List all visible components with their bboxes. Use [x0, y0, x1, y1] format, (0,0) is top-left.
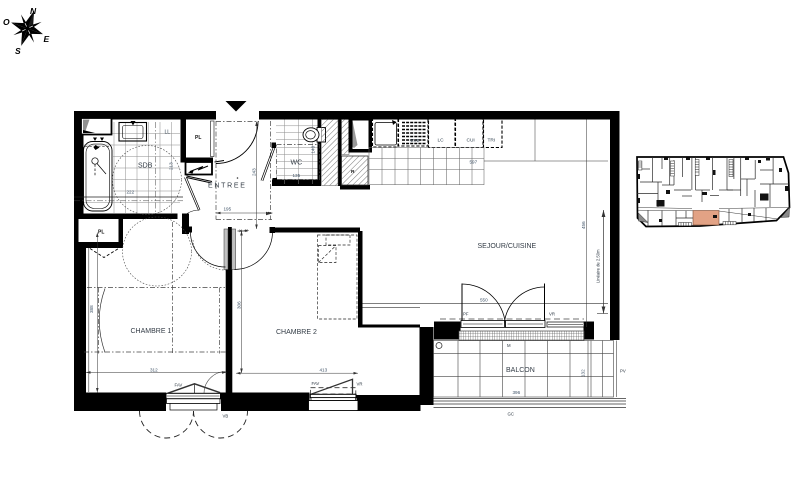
- svg-text:VR: VR: [357, 382, 363, 387]
- svg-text:222: 222: [127, 190, 135, 195]
- svg-text:396: 396: [513, 390, 521, 395]
- svg-text:VR: VR: [549, 312, 555, 317]
- svg-text:E: E: [44, 34, 50, 44]
- svg-text:PL: PL: [195, 135, 201, 141]
- svg-text:BALCON: BALCON: [506, 367, 535, 374]
- svg-text:195: 195: [224, 207, 232, 212]
- svg-text:FAV: FAV: [175, 383, 183, 388]
- svg-text:VB: VB: [223, 414, 229, 419]
- svg-text:M: M: [507, 343, 511, 348]
- svg-text:243: 243: [252, 168, 257, 176]
- svg-text:SEJOUR/CUISINE: SEJOUR/CUISINE: [478, 243, 537, 250]
- svg-text:EVE: EVE: [411, 138, 420, 143]
- svg-text:O: O: [3, 17, 10, 27]
- svg-text:PL: PL: [98, 230, 104, 236]
- svg-text:GC: GC: [508, 412, 514, 417]
- svg-text:WC: WC: [291, 160, 303, 167]
- svg-text:SDB: SDB: [138, 163, 153, 170]
- svg-text:R: R: [351, 169, 355, 175]
- svg-text:FAV: FAV: [312, 381, 320, 386]
- svg-text:Linéaire de 2.50m: Linéaire de 2.50m: [596, 249, 601, 283]
- svg-text:PV: PV: [620, 369, 626, 374]
- svg-text:TRI: TRI: [488, 138, 496, 144]
- svg-text:LL: LL: [165, 130, 171, 136]
- svg-text:132: 132: [581, 369, 586, 377]
- svg-text:ENTREE: ENTREE: [208, 183, 247, 190]
- svg-text:CHAMBRE 2: CHAMBRE 2: [276, 329, 317, 336]
- svg-text:456: 456: [581, 221, 586, 229]
- svg-text:LC: LC: [438, 138, 445, 144]
- svg-text:CUI: CUI: [467, 138, 475, 144]
- svg-text:140: 140: [311, 145, 316, 153]
- svg-text:N: N: [30, 6, 37, 16]
- svg-text:388: 388: [89, 305, 94, 313]
- svg-text:S: S: [15, 46, 21, 56]
- svg-text:135: 135: [293, 173, 301, 178]
- svg-text:CHAMBRE 1: CHAMBRE 1: [131, 328, 172, 335]
- svg-text:213: 213: [169, 162, 174, 170]
- svg-text:312: 312: [150, 367, 158, 372]
- svg-text:550: 550: [480, 298, 488, 303]
- svg-text:597: 597: [470, 160, 478, 165]
- svg-text:PF: PF: [463, 312, 469, 317]
- svg-text:306: 306: [237, 301, 242, 309]
- svg-text:413: 413: [320, 368, 328, 373]
